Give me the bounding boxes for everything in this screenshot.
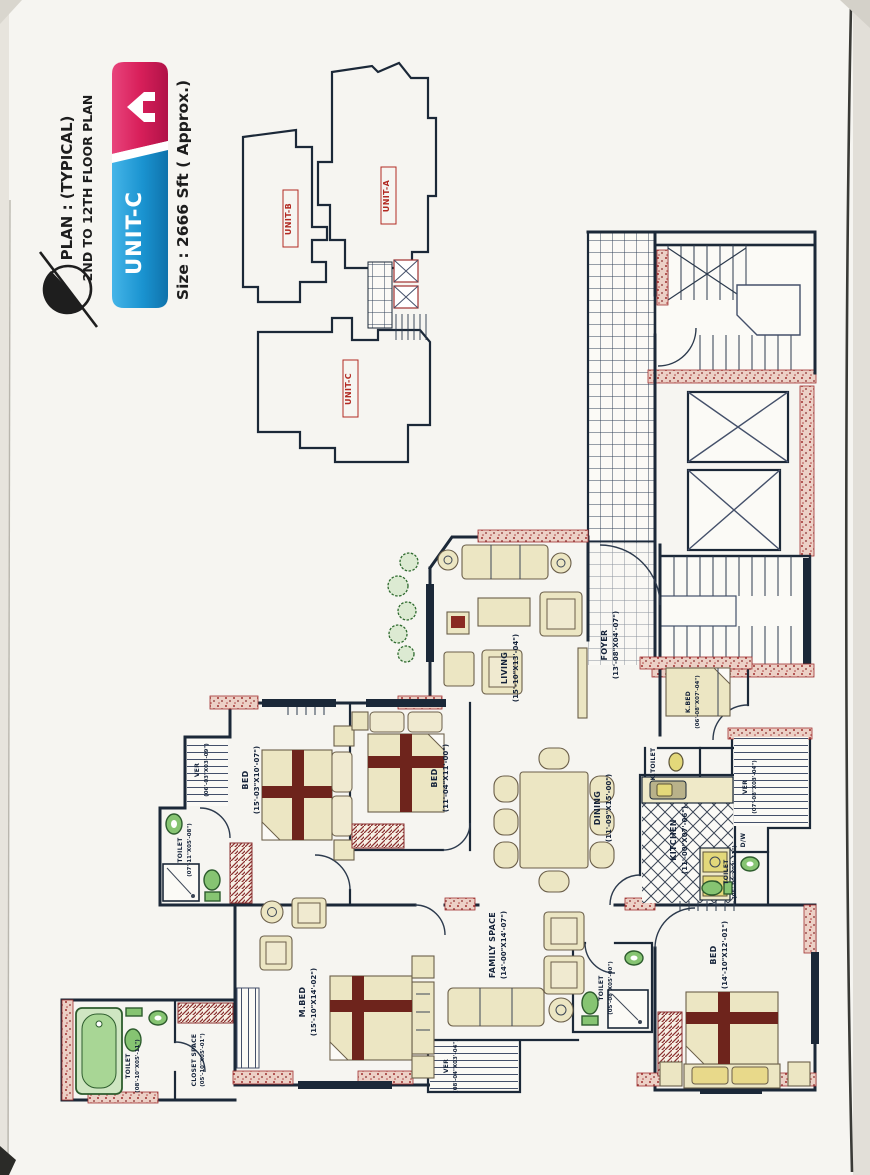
- dining-chair: [590, 842, 614, 868]
- page-edge-right-line: [846, 5, 852, 1172]
- wardrobe: [230, 843, 252, 903]
- ver-left-label: VER: [194, 763, 201, 777]
- dining-chair: [494, 809, 518, 835]
- kbed-dim: (06'-08"X07'-04"): [695, 675, 701, 729]
- foyer-label: FOYER: [600, 630, 609, 661]
- toilet-wc: [669, 753, 683, 771]
- toilet-family-label: TOILET: [598, 975, 605, 1001]
- bed-right-room: BED (14'-10"X12'-01"): [658, 901, 810, 1088]
- pillow: [408, 712, 442, 732]
- double-bed: [330, 976, 412, 1060]
- floorplan-drawing: PLAN : (TYPICAL) 2ND TO 12TH FLOOR PLAN …: [0, 0, 870, 1175]
- living-dim: (15'-10"X13'-04"): [512, 634, 520, 702]
- lamp-table: [551, 553, 571, 573]
- master-bedroom: M.BED (15'-10"X14'-02"): [237, 898, 434, 1078]
- toilet-right-dim: (05'-00"X03'-11"): [732, 845, 738, 899]
- unit-banner-label: UNIT-C: [122, 191, 146, 275]
- bed-right-door-arc: [655, 908, 695, 948]
- dining-chair: [539, 748, 569, 769]
- side-table: [660, 1062, 682, 1086]
- dining-table: [520, 772, 588, 868]
- bed-mid-dim: (11'-04"X11'-00"): [442, 744, 450, 812]
- toilet-left-door-arc: [200, 808, 230, 838]
- family-space-label: FAMILY SPACE: [488, 912, 497, 978]
- toilet-wc: [702, 881, 722, 895]
- round-table: [549, 998, 573, 1022]
- main-floor-plan: LIVING (15'-10"X13'-04") FOYER (13'-08"X…: [62, 232, 819, 1103]
- side-table: [412, 956, 434, 978]
- page-edge-right-shadow: [853, 0, 870, 1175]
- chair: [444, 652, 474, 686]
- keyplan-label-unit-a: UNIT-A: [382, 179, 391, 212]
- bed-left-dim: (15'-03"X10'-07"): [253, 746, 261, 814]
- staircase-top: [655, 245, 815, 373]
- side-table: [334, 726, 354, 746]
- ver-right-label: VER: [742, 780, 749, 794]
- toilet-wc: [582, 992, 598, 1014]
- dining: DINING (11'-09"X15'-00"): [494, 748, 614, 892]
- round-table: [261, 901, 283, 923]
- side-table: [788, 1062, 810, 1086]
- lift-lobby: [588, 232, 655, 665]
- pillow: [692, 1067, 728, 1084]
- keyplan-service-core: [368, 260, 426, 340]
- size-label: Size : 2666 Sft ( Approx.): [174, 80, 192, 300]
- plan-title-line1: PLAN : (TYPICAL): [58, 116, 76, 261]
- living-label: LIVING: [500, 652, 509, 684]
- toilet-left-dim: (07'-11"X05'-08"): [187, 823, 193, 877]
- page-edge-left-shadow: [0, 0, 9, 1175]
- kbed-label: K.BED: [685, 691, 692, 713]
- key-plan: UNIT-A UNIT-B UNIT-C: [243, 63, 436, 462]
- ver-bottom-dim: (08'-04"X03'-04"): [453, 1039, 459, 1093]
- bed-left-room: BED (15'-03"X10'-07"): [230, 707, 354, 903]
- bed-mid-label: BED: [430, 768, 439, 787]
- kitchen-dim: (11'-00"X07'-06"): [681, 806, 689, 874]
- plants: [388, 553, 418, 662]
- wardrobe: [237, 988, 259, 1068]
- keyplan-label-unit-c: UNIT-C: [344, 373, 353, 405]
- master-toilet-label: TOILET: [125, 1053, 132, 1079]
- ver-left-dim: (06'-03"X03'-09"): [204, 743, 210, 797]
- toilet-right-label: TOILET: [723, 859, 730, 885]
- family-space: FAMILY SPACE (14'-00"X14'-07"): [448, 911, 584, 1026]
- dining-dim: (11'-09"X15'-00"): [605, 774, 613, 842]
- wardrobe: [352, 824, 404, 848]
- bed-right-dim: (14'-10"X12'-01"): [721, 921, 729, 989]
- toilet-left: TOILET (07'-11"X05'-08"): [163, 814, 220, 901]
- plan-title-line2: 2ND TO 12TH FLOOR PLAN: [80, 95, 95, 282]
- pillow: [332, 796, 352, 836]
- pillow: [332, 752, 352, 792]
- corner-fold-topleft: [0, 0, 22, 24]
- closet-label: CLOSET SPACE: [191, 1034, 198, 1087]
- bed-right-label: BED: [709, 945, 718, 964]
- bed-mid-door-arc: [443, 823, 470, 850]
- side-table: [334, 840, 354, 860]
- toilet-wc: [204, 870, 220, 890]
- dining-chair: [494, 842, 518, 868]
- ver-bottom-label: VER: [443, 1059, 450, 1073]
- title-block: PLAN : (TYPICAL) 2ND TO 12TH FLOOR PLAN …: [40, 62, 192, 327]
- dining-chair: [539, 871, 569, 892]
- foyer-dim: (13'-08"X04'-07"): [612, 611, 620, 679]
- side-table: [412, 1056, 434, 1078]
- mbed-label: M.BED: [298, 987, 307, 1018]
- wall-column: [648, 370, 816, 383]
- sideboard: [578, 648, 587, 718]
- double-bed: [686, 992, 778, 1064]
- keyplan-label-unit-b: UNIT-B: [284, 203, 293, 235]
- sofa: [448, 988, 544, 1026]
- side-table: [352, 712, 368, 730]
- dw-label: D/W: [740, 833, 747, 848]
- living-room: LIVING (15'-10"X13'-04"): [438, 545, 587, 718]
- sofa: [462, 545, 548, 579]
- pillow: [370, 712, 404, 732]
- lamp-table: [438, 550, 458, 570]
- keyplan-unit-a-outline: [318, 63, 436, 268]
- master-toilet-dim: (08'-10"X05'-11"): [135, 1039, 141, 1093]
- family-space-dim: (14'-00"X14'-07"): [500, 911, 508, 979]
- dining-label: DINING: [593, 791, 602, 825]
- ktoilet-label: K.TOILET: [650, 747, 657, 780]
- closet-dim: (05'-10"X05'-01"): [200, 1033, 206, 1087]
- dining-chair: [494, 776, 518, 802]
- bed-mid-room: BED (11'-04"X11'-00"): [352, 712, 450, 848]
- kbed-room: K.BED (06'-08"X07'-04") K.TOILET: [650, 668, 730, 780]
- mbed-dim: (15'-10"X14'-02"): [310, 968, 318, 1036]
- coffee-table: [478, 598, 530, 626]
- stair-landing: [660, 596, 736, 626]
- toilet-left-label: TOILET: [177, 837, 184, 863]
- ver-right-dim: (07'-08"X03'-04"): [752, 760, 758, 814]
- master-toilet: TOILET (08'-10"X05'-11"): [76, 1008, 167, 1094]
- verandah-right: VER (07'-08"X03'-04") D/W: [734, 737, 808, 847]
- verandah-bottom: VER (08'-04"X03'-04"): [430, 1039, 518, 1093]
- closet-shelves: [178, 1003, 233, 1023]
- tv-unit: [451, 616, 465, 628]
- closet-space: CLOSET SPACE (05'-10"X05'-01"): [178, 1003, 233, 1087]
- unit-banner: UNIT-C: [112, 62, 168, 308]
- kitchen-label: KITCHEN: [669, 819, 678, 860]
- pillow: [732, 1067, 768, 1084]
- bed-left-label: BED: [241, 770, 250, 789]
- verandah-left: VER (06'-03"X03'-09"): [187, 739, 228, 806]
- mbed-door-arc: [415, 905, 445, 935]
- toilet-family-dim: (05'-08"X05'-00"): [608, 961, 614, 1015]
- headboard: [412, 982, 434, 1054]
- scanned-floorplan-sheet: PLAN : (TYPICAL) 2ND TO 12TH FLOOR PLAN …: [0, 0, 870, 1175]
